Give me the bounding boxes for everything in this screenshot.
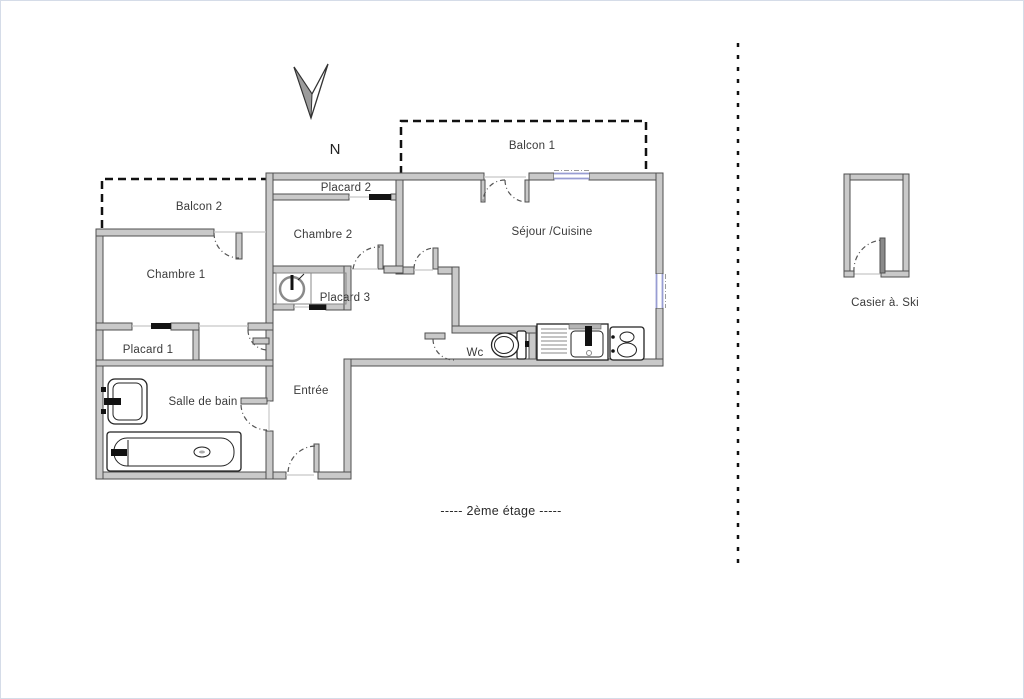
- wall-segment: [96, 229, 214, 236]
- stove-knob: [611, 335, 615, 339]
- bathroom-sink-knob: [101, 409, 106, 414]
- ski-locker: [844, 174, 909, 277]
- room-label-salle-de-bain: Salle de bain: [168, 396, 237, 408]
- wall-segment: [96, 323, 132, 330]
- door-arc-french-left: [483, 180, 505, 202]
- wall-segment: [96, 229, 103, 479]
- wall-segment: [266, 363, 273, 401]
- wall-segment: [452, 267, 459, 333]
- wall-segment: [171, 323, 199, 330]
- door-leaf: [236, 233, 242, 259]
- wall-segment: [396, 180, 403, 274]
- wall-segment: [844, 174, 850, 277]
- floorplan-canvas: N Balcon 1 Balcon 2 Placard 2 Chambre 2 …: [1, 1, 1024, 699]
- wall-segment: [403, 267, 414, 274]
- wall-segment: [318, 472, 351, 479]
- bathroom-fixtures: [101, 379, 241, 471]
- north-arrow-fill: [294, 67, 312, 118]
- wall-segment: [266, 173, 484, 180]
- toilet-knob: [525, 341, 529, 347]
- wall-segment: [384, 266, 403, 273]
- door-leaf: [378, 245, 383, 269]
- north-label: N: [330, 141, 341, 158]
- washbasin-tap: [291, 275, 294, 290]
- room-label-casier: Casier à. Ski: [851, 297, 919, 309]
- door-arc-chambre2: [353, 247, 380, 269]
- wall-segment: [903, 174, 909, 277]
- wall-segment: [589, 173, 663, 180]
- room-label-wc: Wc: [466, 347, 483, 359]
- bathroom-sink-knob: [101, 387, 106, 392]
- wall-segment: [656, 308, 663, 366]
- wall-segment: [529, 333, 536, 359]
- wall-segment: [344, 359, 351, 479]
- bathtub-tap: [111, 449, 127, 456]
- door-leaf: [241, 398, 267, 404]
- door-leaf: [433, 248, 438, 269]
- wall-segment: [273, 194, 349, 200]
- door-arc-french-right: [505, 180, 527, 202]
- wall-segment: [656, 173, 663, 274]
- door-arc-wc: [433, 339, 454, 360]
- sliding-door-placard2: [369, 194, 391, 200]
- washbasin-tick: [298, 274, 304, 280]
- room-label-balcon2: Balcon 2: [176, 201, 222, 213]
- sliding-door-placard1: [151, 323, 171, 329]
- wall-segment: [96, 360, 273, 366]
- kitchen-sink-tap: [585, 326, 592, 346]
- wall-segment: [425, 333, 445, 339]
- bathtub-drain-dot: [199, 451, 205, 454]
- sliding-door-placard3: [309, 304, 326, 310]
- windows: [554, 171, 666, 309]
- wall-segment: [193, 330, 199, 363]
- room-label-placard3: Placard 3: [320, 292, 370, 304]
- north-arrow: [294, 64, 328, 118]
- door-leaf-casier: [880, 238, 885, 273]
- door-arc-chambre1-balcony: [214, 233, 239, 258]
- room-label-balcon1: Balcon 1: [509, 140, 555, 152]
- door-arc-sejour: [414, 248, 433, 269]
- wall-segment: [266, 173, 273, 363]
- room-label-chambre2: Chambre 2: [294, 229, 353, 241]
- wall-segment: [844, 271, 854, 277]
- door-leaf: [481, 180, 485, 202]
- wall-segment: [844, 174, 909, 180]
- wall-segment: [273, 304, 294, 310]
- wall-segment: [248, 323, 273, 330]
- kitchen-fixtures: [537, 324, 644, 360]
- wall-segment: [253, 338, 269, 344]
- door-leaf: [314, 444, 319, 472]
- room-label-entree: Entrée: [293, 385, 328, 397]
- room-label-placard2: Placard 2: [321, 182, 371, 194]
- bathroom-sink-tap: [104, 398, 121, 405]
- kitchen-drainboard: [541, 329, 567, 353]
- door-arc-casier: [854, 240, 882, 272]
- toilet: [492, 331, 530, 359]
- wall-segment: [96, 472, 286, 479]
- room-label-chambre1: Chambre 1: [147, 269, 206, 281]
- room-label-sejour: Séjour /Cuisine: [512, 226, 593, 238]
- wall-segment: [266, 431, 273, 479]
- wall-segment: [529, 173, 554, 180]
- stove-knob: [611, 349, 615, 353]
- floorplan-page: N Balcon 1 Balcon 2 Placard 2 Chambre 2 …: [0, 0, 1024, 699]
- wall-segment: [273, 266, 351, 273]
- door-leaf: [525, 180, 529, 202]
- door-arc-entrance: [288, 446, 316, 472]
- room-label-placard1: Placard 1: [123, 344, 173, 356]
- door-arc-salle-de-bain: [241, 405, 267, 430]
- floor-caption: ----- 2ème étage -----: [440, 504, 561, 518]
